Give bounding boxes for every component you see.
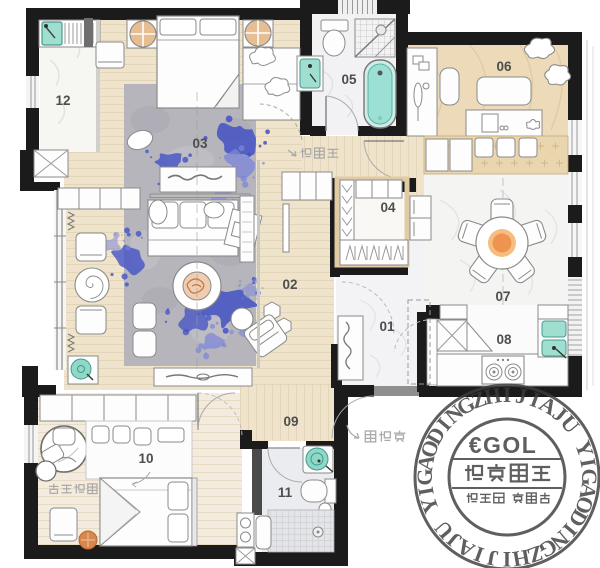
svg-text:11: 11 <box>278 485 293 500</box>
svg-text:08: 08 <box>496 332 512 347</box>
svg-text:10: 10 <box>138 451 153 466</box>
svg-text:04: 04 <box>380 200 396 215</box>
svg-text:I: I <box>503 547 512 568</box>
svg-text:07: 07 <box>495 289 510 304</box>
svg-text:I: I <box>503 382 512 407</box>
svg-text:€GOL: €GOL <box>469 432 538 458</box>
svg-text:12: 12 <box>55 93 70 108</box>
svg-text:01: 01 <box>379 319 395 334</box>
svg-text:02: 02 <box>282 277 297 292</box>
svg-text:06: 06 <box>496 59 512 74</box>
svg-text:09: 09 <box>283 414 298 429</box>
svg-text:05: 05 <box>341 72 357 87</box>
svg-text:H: H <box>511 544 532 568</box>
svg-text:03: 03 <box>192 136 208 151</box>
